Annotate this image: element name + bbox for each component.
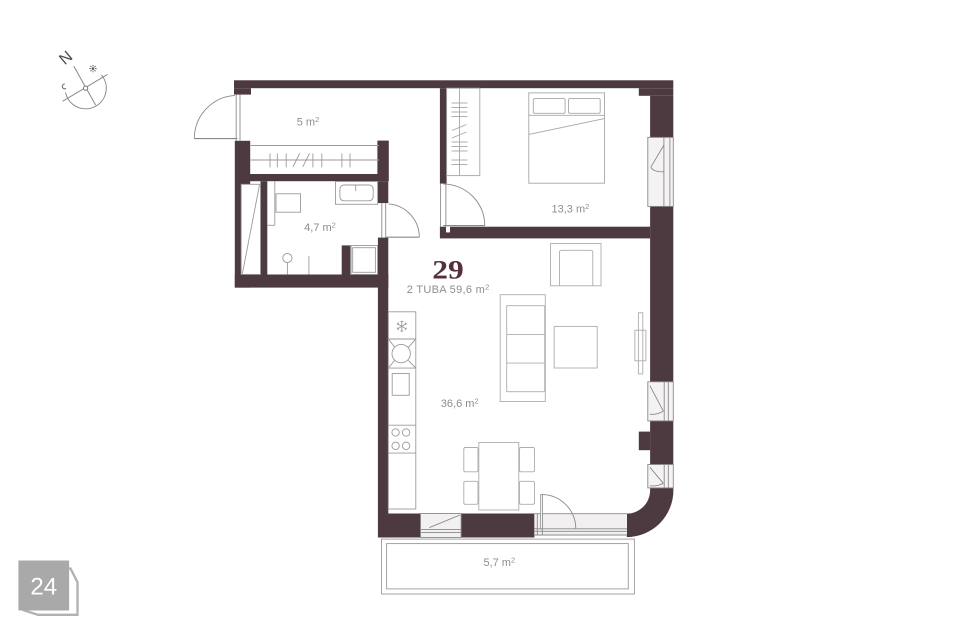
svg-text:36,6 m2: 36,6 m2	[441, 397, 479, 411]
svg-text:24: 24	[30, 574, 57, 601]
svg-text:2 TUBA 59,6 m2: 2 TUBA 59,6 m2	[407, 283, 490, 297]
svg-text:13,3 m2: 13,3 m2	[551, 202, 589, 216]
svg-text:4,7 m2: 4,7 m2	[304, 221, 336, 235]
svg-text:29: 29	[432, 255, 464, 285]
svg-text:5,7 m2: 5,7 m2	[483, 556, 515, 570]
